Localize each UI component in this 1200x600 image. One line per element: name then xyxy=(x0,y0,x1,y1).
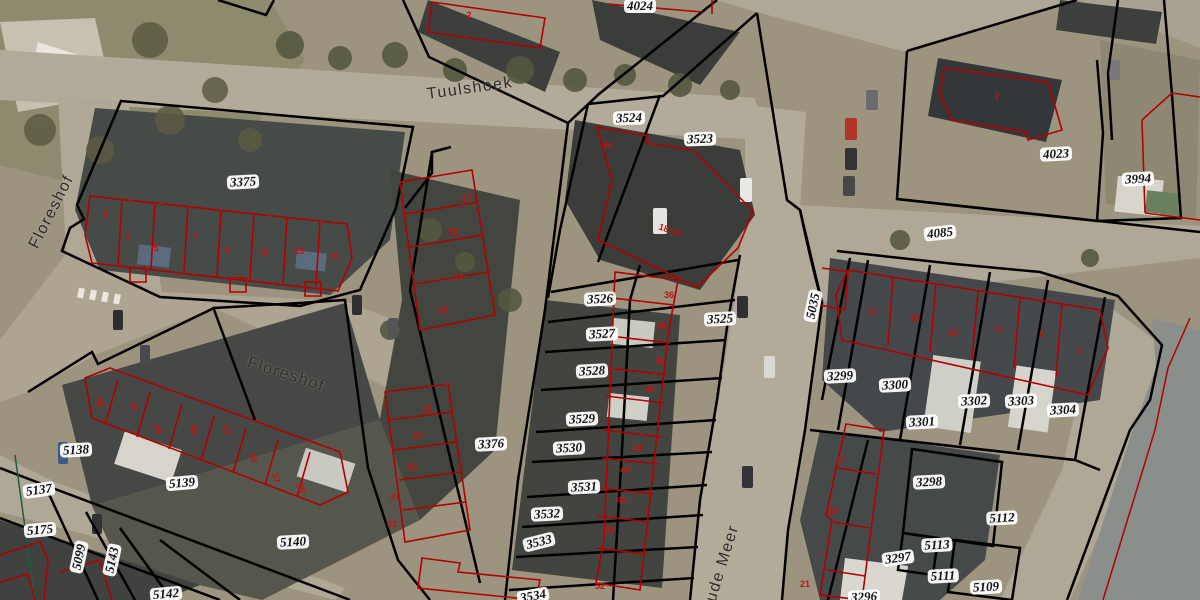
map-image xyxy=(0,0,1200,600)
map-canvas[interactable]: TuulshoekFloreshofFloreshofOude Meer 402… xyxy=(0,0,1200,600)
